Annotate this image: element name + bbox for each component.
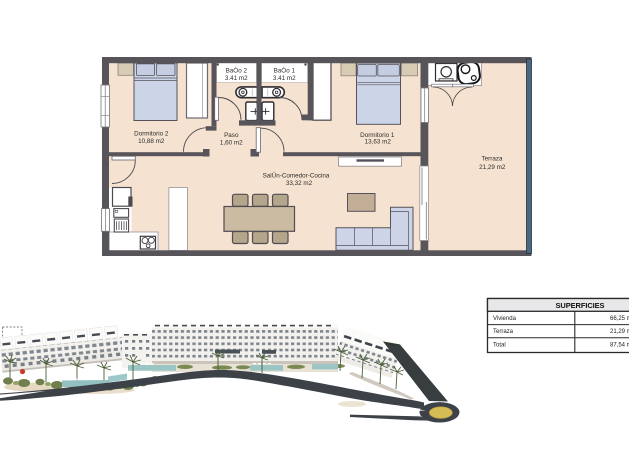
svg-text:Vivienda: Vivienda xyxy=(493,316,517,322)
svg-text:66,25 m2: 66,25 m2 xyxy=(610,316,629,322)
svg-text:Paso: Paso xyxy=(224,132,239,139)
svg-text:Total: Total xyxy=(493,342,506,348)
svg-text:SalÛn-Comedor-Cocina: SalÛn-Comedor-Cocina xyxy=(263,171,330,180)
svg-text:BaÒo 2: BaÒo 2 xyxy=(226,65,248,74)
svg-text:BaÒo 1: BaÒo 1 xyxy=(274,65,296,74)
svg-text:21,29 m2: 21,29 m2 xyxy=(479,164,506,171)
svg-text:21,29 m2: 21,29 m2 xyxy=(610,329,629,335)
svg-text:33,32 m2: 33,32 m2 xyxy=(286,180,313,187)
svg-text:87,54 m2: 87,54 m2 xyxy=(610,342,629,348)
svg-text:10,88 m2: 10,88 m2 xyxy=(138,138,165,145)
svg-text:1,60 m2: 1,60 m2 xyxy=(220,140,243,147)
svg-text:Dormitorio 2: Dormitorio 2 xyxy=(134,130,169,137)
svg-text:Terraza: Terraza xyxy=(493,329,514,335)
svg-text:3.41 m2: 3.41 m2 xyxy=(273,75,296,82)
svg-text:Terraza: Terraza xyxy=(482,155,503,162)
svg-text:3.41 m2: 3.41 m2 xyxy=(225,75,248,82)
svg-text:13,63 m2: 13,63 m2 xyxy=(365,138,392,145)
svg-text:SUPERFICIES: SUPERFICIES xyxy=(556,301,605,310)
